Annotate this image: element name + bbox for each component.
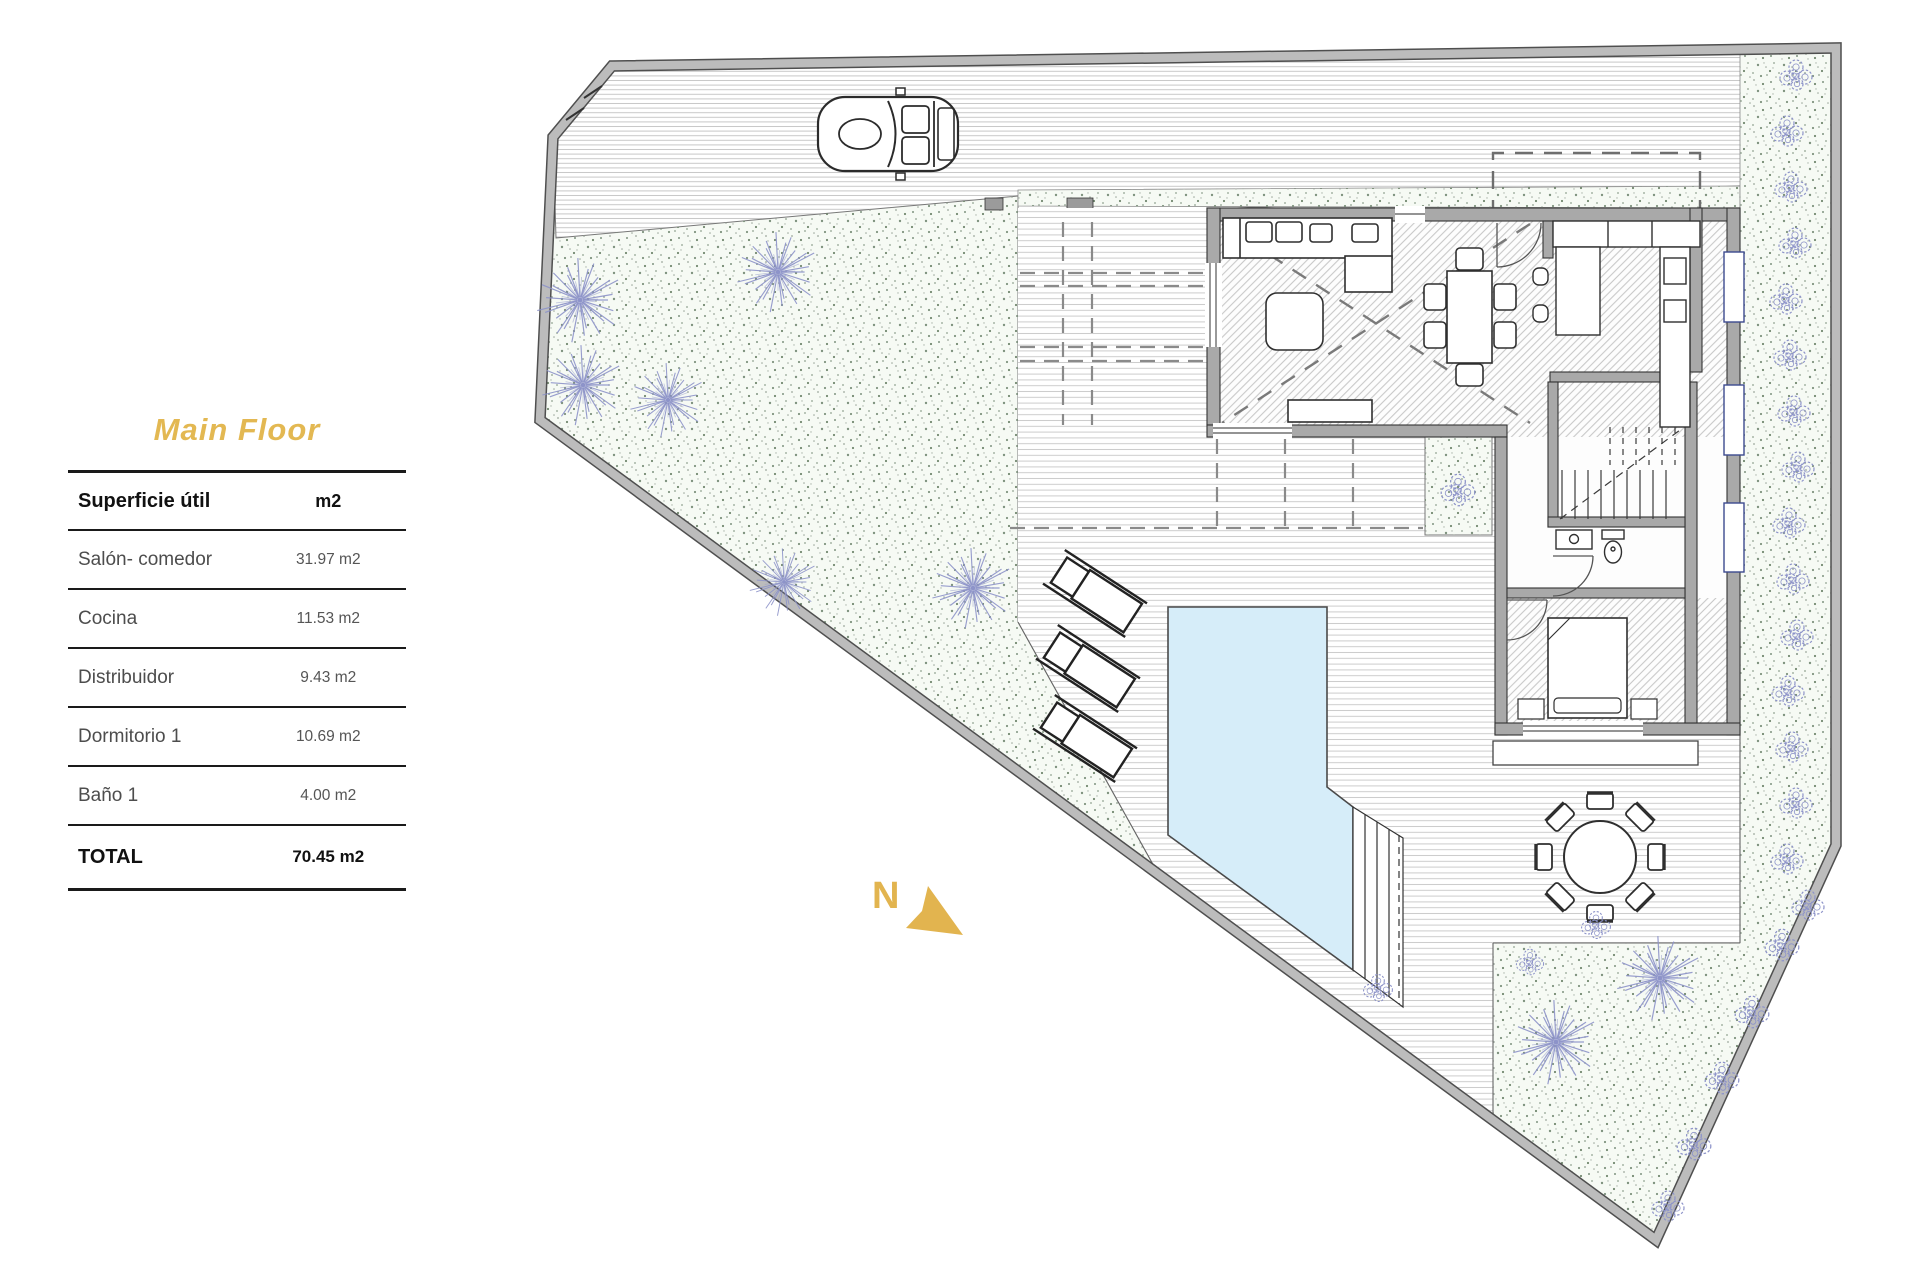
- kitchen-stool: [1533, 305, 1548, 322]
- outdoor-chair: [1536, 844, 1552, 870]
- col-header-m2: m2: [251, 472, 406, 531]
- total-value: 70.45 m2: [251, 825, 406, 890]
- table-row: Baño 1 4.00 m2: [68, 766, 406, 825]
- page-title: Main Floor: [68, 412, 406, 448]
- table-header-row: Superficie útil m2: [68, 472, 406, 531]
- car-icon: [818, 88, 958, 180]
- row-label: Dormitorio 1: [68, 707, 251, 766]
- row-value: 11.53 m2: [251, 589, 406, 648]
- nightstand: [1518, 699, 1544, 719]
- table-row: Distribuidor 9.43 m2: [68, 648, 406, 707]
- row-value: 31.97 m2: [251, 530, 406, 589]
- area-table: Superficie útil m2 Salón- comedor 31.97 …: [68, 470, 406, 891]
- row-label: Cocina: [68, 589, 251, 648]
- total-label: TOTAL: [68, 825, 251, 890]
- col-header-superficie: Superficie útil: [68, 472, 251, 531]
- coffee-table: [1266, 293, 1323, 350]
- table-total-row: TOTAL 70.45 m2: [68, 825, 406, 890]
- north-arrow: N: [872, 875, 963, 935]
- toilet-tank: [1602, 530, 1624, 539]
- floor-plan-sheet: N Main Floor Superficie útil m2 Salón- c…: [0, 0, 1920, 1280]
- toilet-bowl: [1605, 541, 1622, 563]
- table-row: Dormitorio 1 10.69 m2: [68, 707, 406, 766]
- row-value: 9.43 m2: [251, 648, 406, 707]
- area-summary-panel: Main Floor Superficie útil m2 Salón- com…: [68, 412, 406, 891]
- outdoor-chair: [1648, 844, 1664, 870]
- outdoor-chair: [1587, 793, 1613, 809]
- north-label: N: [872, 875, 899, 917]
- table-row: Cocina 11.53 m2: [68, 589, 406, 648]
- row-label: Distribuidor: [68, 648, 251, 707]
- row-label: Salón- comedor: [68, 530, 251, 589]
- kitchen-stool: [1533, 268, 1548, 285]
- row-value: 4.00 m2: [251, 766, 406, 825]
- planter-bench: [1493, 741, 1698, 765]
- nightstand: [1631, 699, 1657, 719]
- tv-bench: [1288, 400, 1372, 422]
- row-label: Baño 1: [68, 766, 251, 825]
- table-row: Salón- comedor 31.97 m2: [68, 530, 406, 589]
- outdoor-chair: [1587, 905, 1613, 921]
- row-value: 10.69 m2: [251, 707, 406, 766]
- facade-windows: [1724, 252, 1744, 572]
